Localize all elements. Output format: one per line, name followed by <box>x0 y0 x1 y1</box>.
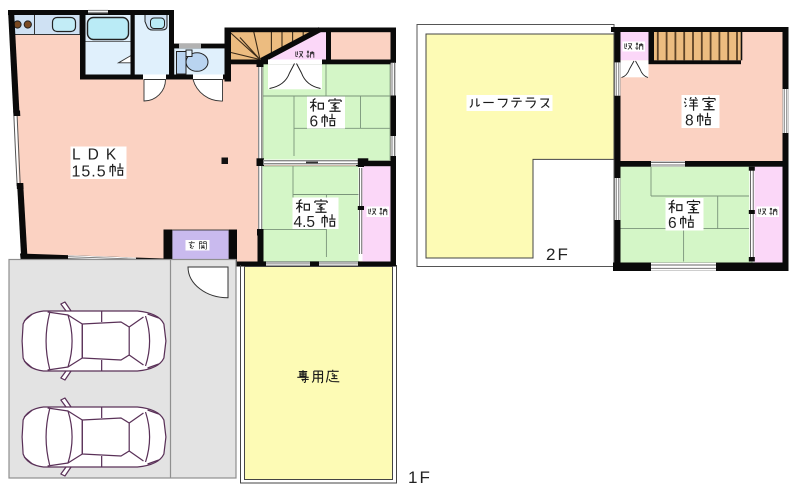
svg-text:15.5: 15.5 <box>72 164 107 181</box>
svg-text:6: 6 <box>668 215 677 232</box>
svg-text:4.5: 4.5 <box>294 214 316 231</box>
svg-text:6: 6 <box>310 114 319 131</box>
svg-text:LDK: LDK <box>72 147 123 164</box>
svg-text:1F: 1F <box>408 468 432 487</box>
svg-text:2F: 2F <box>546 245 570 264</box>
svg-text:8: 8 <box>685 113 694 130</box>
